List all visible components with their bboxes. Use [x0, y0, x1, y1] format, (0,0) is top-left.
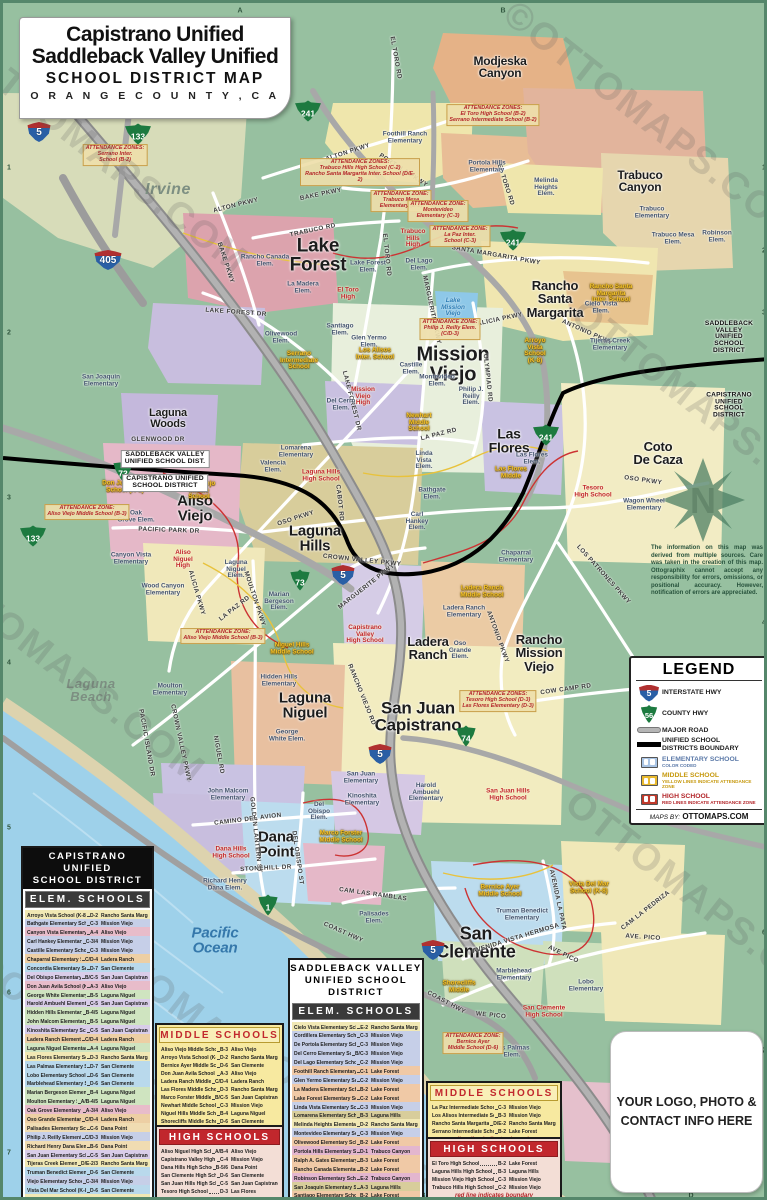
- school-row: Wagon Wheel Elementary SchoolE-3Coto de …: [25, 1194, 150, 1200]
- legend-item-county: 56 COUNTY HWY: [636, 705, 762, 723]
- school-name: Chaparral Elementary School: [27, 957, 81, 963]
- grid-ref: A-4: [90, 930, 98, 936]
- school-row: Hidden Hills Elementary SchoolB-4/5Lagun…: [25, 1007, 150, 1016]
- school-name: Tijeras Creek Elementary School: [27, 1161, 77, 1167]
- school-name: Palisades Elementary School: [27, 1126, 86, 1132]
- school-city: San Clemente: [101, 1188, 148, 1194]
- school-city: Mission Viejo: [371, 1060, 418, 1066]
- leader-dots: [87, 987, 89, 988]
- school-name: San Juan Hills High School: [161, 1181, 216, 1187]
- grid-ref: B-4: [220, 1111, 228, 1117]
- leader-dots: [82, 1040, 84, 1041]
- school-name: Robinson Elementary School: [294, 1176, 356, 1182]
- leader-dots: [217, 1177, 219, 1178]
- school-city: Ladera Ranch: [101, 1037, 148, 1043]
- capistrano-district-header: CAPISTRANO UNIFIED SCHOOL DISTRICT: [23, 848, 152, 889]
- school-city: Mission Viejo: [101, 1179, 148, 1185]
- school-city: Lake Forest: [371, 1158, 418, 1164]
- school-city: Trabuco Canyon: [371, 1176, 418, 1182]
- school-name: Castille Elementary School: [27, 948, 86, 954]
- school-city: Mission Viejo: [509, 1113, 556, 1119]
- school-name: George White Elementary School: [27, 993, 86, 999]
- school-city: Lake Forest: [371, 1140, 418, 1146]
- grid-ref: A/B-4: [215, 1149, 228, 1155]
- school-row: Shorecliffs Middle SchoolD-6San Clemente: [159, 1117, 280, 1125]
- school-city: Rancho Santa Margarita: [231, 1055, 278, 1061]
- grid-ref: B-2: [360, 1193, 368, 1199]
- school-name: Serrano Intermediate School: [432, 1129, 494, 1135]
- leader-dots: [217, 1107, 219, 1108]
- school-row: Aliso Niguel High SchoolA/B-4Aliso Viejo: [159, 1147, 280, 1155]
- school-city: San Juan Capistrano: [231, 1095, 278, 1101]
- school-row: George White Elementary SchoolB-5Laguna …: [25, 990, 150, 999]
- school-row: Ladera Ranch Middle SchoolC/D-4Ladera Ra…: [159, 1077, 280, 1085]
- leader-dots: [87, 934, 89, 935]
- school-city: Laguna Hills: [509, 1169, 556, 1175]
- school-name: Tesoro High School: [161, 1189, 208, 1195]
- school-city: Mission Viejo: [231, 1157, 278, 1163]
- leader-dots: [357, 1081, 359, 1082]
- school-row: Don Juan Avila School (K-8)A-3Aliso Viej…: [25, 981, 150, 990]
- school-name: Ladera Ranch Middle School: [161, 1079, 211, 1085]
- grid-ref: C-3: [360, 1131, 368, 1137]
- school-name: Moulton Elementary School: [27, 1099, 77, 1105]
- leader-dots: [357, 1046, 359, 1047]
- school-name: Oak Grove Elementary School: [27, 1108, 82, 1114]
- grid-ref: A-3/4: [86, 1108, 98, 1114]
- school-city: San Juan Capistrano: [101, 975, 148, 981]
- saddleback-elem-rows: Cielo Vista Elementary SchoolE-2Rancho S…: [290, 1022, 422, 1200]
- leader-dots: [352, 1055, 354, 1056]
- elementary-book-icon: [641, 757, 658, 768]
- grid-ref: B-2: [360, 1087, 368, 1093]
- school-row: La Madera Elementary SchoolB-2Lake Fores…: [292, 1084, 420, 1093]
- school-name: Oso Grande Elementary School: [27, 1117, 81, 1123]
- school-name: Marblehead Elementary School: [27, 1081, 86, 1087]
- leader-dots: [87, 1058, 89, 1059]
- legend-sublabel: RED LINES INDICATE ATTENDANCE ZONE: [662, 800, 756, 805]
- school-city: Rancho Santa Margarita: [101, 1161, 148, 1167]
- school-city: Rancho Santa Margarita: [101, 913, 148, 919]
- school-city: Mission Viejo: [371, 1105, 418, 1111]
- school-row: San Juan Elementary SchoolC-5San Juan Ca…: [25, 1150, 150, 1159]
- school-city: Laguna Niguel: [101, 1046, 148, 1052]
- leader-dots: [82, 960, 84, 961]
- saddleback-elem-header: ELEM. SCHOOLS: [292, 1003, 420, 1020]
- leader-dots: [217, 1115, 219, 1116]
- school-row: Cielo Vista Elementary SchoolE-2Rancho S…: [292, 1022, 420, 1031]
- leader-dots: [357, 1072, 359, 1073]
- school-row: Newhart Middle SchoolC-3Mission Viejo: [159, 1101, 280, 1109]
- leader-dots: [78, 1165, 80, 1166]
- leader-dots: [357, 1170, 359, 1171]
- leader-dots: [87, 1049, 89, 1050]
- leader-dots: [217, 1051, 219, 1052]
- school-name: Canyon Vista Elementary School: [27, 930, 86, 936]
- school-city: Lake Forest: [371, 1069, 418, 1075]
- leader-dots: [87, 1067, 89, 1068]
- grid-ref: C/D-4: [85, 1037, 98, 1043]
- leader-dots: [87, 996, 89, 997]
- legend-item-boundary: UNIFIED SCHOOL DISTRICTS BOUNDARY: [636, 737, 762, 752]
- school-city: Aliso Viejo: [101, 984, 148, 990]
- school-row: Bathgate Elementary SchoolC-3Mission Vie…: [25, 919, 150, 928]
- school-city: Mission Viejo: [371, 1078, 418, 1084]
- leader-dots: [87, 1005, 89, 1006]
- school-name: Portola Hills Elementary School: [294, 1149, 356, 1155]
- school-row: Vista Del Mar School (K-8)D-6San Clement…: [25, 1185, 150, 1194]
- leader-dots: [490, 1125, 492, 1126]
- leader-dots: [87, 1129, 89, 1130]
- school-name: Montevideo Elementary School: [294, 1131, 356, 1137]
- school-row: Philip J. Reilly Elementary SchoolC/D-3M…: [25, 1132, 150, 1141]
- grid-ref: C-3: [360, 1042, 368, 1048]
- grid-ref: D-2: [90, 913, 98, 919]
- school-city: Aliso Viejo: [101, 930, 148, 936]
- grid-ref: D-6: [90, 1081, 98, 1087]
- school-row: Capistrano Valley High SchoolC-4Mission …: [159, 1155, 280, 1163]
- grid-ref: C-5: [90, 1001, 98, 1007]
- major-road-icon: [637, 727, 661, 733]
- school-city: Mission Viejo: [509, 1177, 556, 1183]
- school-row: Los Alisos Intermediate SchoolB-3Mission…: [430, 1111, 558, 1119]
- leader-dots: [357, 1064, 359, 1065]
- grid-ref: D-3: [90, 1055, 98, 1061]
- legend-item-elementary: ELEMENTARY SCHOOLCOLOR CODED: [636, 756, 762, 769]
- school-row: Las Flores Elementary SchoolD-3Rancho Sa…: [25, 1052, 150, 1061]
- leader-dots: [87, 1174, 89, 1175]
- school-name: Hidden Hills Elementary School: [27, 1010, 82, 1016]
- school-name: Dana Hills High School: [161, 1165, 212, 1171]
- saddleback-high-note: red line indicates boundary: [428, 1193, 560, 1200]
- school-name: Kinoshita Elementary School: [27, 1028, 86, 1034]
- school-city: Mission Viejo: [231, 1103, 278, 1109]
- leader-dots: [213, 1169, 215, 1170]
- school-city: Aliso Viejo: [231, 1149, 278, 1155]
- school-city: Laguna Niguel: [101, 1090, 148, 1096]
- school-row: Las Palmas Elementary SchoolD-7San Cleme…: [25, 1061, 150, 1070]
- grid-ref: B/C-5: [85, 975, 98, 981]
- legend-item-middle: MIDDLE SCHOOLYELLOW LINES INDICATE ATTEN…: [636, 772, 762, 790]
- saddleback-middle-rows: La Paz Intermediate SchoolC-3Mission Vie…: [428, 1103, 560, 1137]
- school-name: Laguna Hills High School: [432, 1169, 492, 1175]
- grid-ref: D/E-2/3: [81, 1161, 98, 1167]
- school-city: Mission Viejo: [371, 1033, 418, 1039]
- school-city: Laguna Hills: [371, 1185, 418, 1191]
- leader-dots: [357, 1126, 359, 1127]
- capistrano-middle-header: MIDDLE SCHOOLS: [159, 1027, 280, 1043]
- capistrano-high-rows: Aliso Niguel High SchoolA/B-4Aliso Viejo…: [157, 1147, 282, 1197]
- grid-ref: B-4: [90, 1090, 98, 1096]
- school-city: Ladera Ranch: [101, 957, 148, 963]
- grid-ref: C-3: [90, 921, 98, 927]
- grid-ref: E-2: [360, 1176, 368, 1182]
- school-city: San Clemente: [231, 1173, 278, 1179]
- school-city: San Clemente: [101, 1073, 148, 1079]
- school-row: Tesoro High SchoolD-3Las Flores: [159, 1187, 280, 1195]
- school-city: Aliso Viejo: [231, 1047, 278, 1053]
- grid-ref: C-3/4: [86, 1179, 98, 1185]
- grid-ref: C-5: [220, 1181, 228, 1187]
- school-name: Capistrano Valley High School: [161, 1157, 216, 1163]
- school-name: Las Flores Elementary School: [27, 1055, 86, 1061]
- leader-dots: [212, 1153, 214, 1154]
- school-name: Don Juan Avila School (K-8): [161, 1071, 216, 1077]
- leader-dots: [83, 943, 85, 944]
- leader-dots: [83, 1014, 85, 1015]
- grid-ref: B-3: [498, 1169, 506, 1175]
- leader-dots: [82, 1138, 84, 1139]
- school-row: Lake Forest Elementary SchoolC-2Lake For…: [292, 1093, 420, 1102]
- leader-dots: [217, 1123, 219, 1124]
- school-city: Laguna Niguel: [101, 993, 148, 999]
- grid-ref: C-3/4: [86, 939, 98, 945]
- leader-dots: [212, 1083, 214, 1084]
- school-row: Dana Hills High SchoolB-5/6Dana Point: [159, 1163, 280, 1171]
- school-name: Aliso Viejo Middle School: [161, 1047, 216, 1053]
- legend-label: UNIFIED SCHOOL DISTRICTS BOUNDARY: [662, 737, 739, 752]
- school-name: La Madera Elementary School: [294, 1087, 356, 1093]
- leader-dots: [480, 1165, 497, 1166]
- school-row: Richard Henry Dana Elementary SchoolB-6D…: [25, 1141, 150, 1150]
- school-row: Trabuco Hills High SchoolC-2Mission Viej…: [430, 1183, 558, 1191]
- school-row: Niguel Hills Middle SchoolB-4Laguna Nigu…: [159, 1109, 280, 1117]
- school-name: Lobo Elementary School: [27, 1073, 86, 1079]
- school-name: Cielo Vista Elementary School: [294, 1025, 356, 1031]
- school-row: Montevideo Elementary SchoolC-3Mission V…: [292, 1128, 420, 1137]
- school-city: Las Flores: [231, 1189, 278, 1195]
- school-row: Concordia Elementary SchoolD-7San Clemen…: [25, 963, 150, 972]
- leader-dots: [495, 1181, 497, 1182]
- school-city: San Juan Capistrano: [231, 1181, 278, 1187]
- grid-ref: C-3: [360, 1033, 368, 1039]
- school-row: San Joaquin Elementary SchoolA-3Laguna H…: [292, 1182, 420, 1191]
- leader-dots: [87, 916, 89, 917]
- boundary-line-icon: [637, 742, 661, 747]
- grid-ref: B-3: [360, 1158, 368, 1164]
- school-name: Bathgate Elementary School: [27, 921, 86, 927]
- school-name: Lomarena Elementary School: [294, 1113, 356, 1119]
- school-row: Ladera Ranch Elementary SchoolC/D-4Lader…: [25, 1034, 150, 1043]
- saddleback-district-header: SADDLEBACK VALLEY UNIFIED SCHOOL DISTRIC…: [290, 960, 422, 1001]
- school-city: Lake Forest: [371, 1193, 418, 1199]
- leader-dots: [357, 1188, 359, 1189]
- leader-dots: [217, 1067, 219, 1068]
- leader-dots: [357, 1179, 359, 1180]
- leader-dots: [217, 1059, 219, 1060]
- capistrano-elem-rows: Arroyo Vista School (K-8)D-2Rancho Santa…: [23, 910, 152, 1200]
- leader-dots: [87, 1032, 89, 1033]
- school-name: Santiago Elementary School: [294, 1193, 356, 1199]
- leader-dots: [87, 969, 89, 970]
- maps-by-prefix: MAPS BY:: [650, 814, 680, 821]
- school-row: Del Cerro Elementary SchoolB/C-3Mission …: [292, 1048, 420, 1057]
- school-name: Marian Bergeson Elementary School: [27, 1090, 86, 1096]
- legend-item-interstate: 5 INTERSTATE HWY: [636, 685, 762, 702]
- leader-dots: [357, 1099, 359, 1100]
- school-city: Laguna Niguel: [101, 1099, 148, 1105]
- grid-ref: D/E-2: [493, 1121, 506, 1127]
- school-name: Mission Viejo High School: [432, 1177, 494, 1183]
- leader-dots: [357, 1108, 359, 1109]
- grid-ref: D-3: [220, 1189, 228, 1195]
- school-name: Las Palmas Elementary School: [27, 1064, 86, 1070]
- school-row: Kinoshita Elementary SchoolC-5San Juan C…: [25, 1025, 150, 1034]
- school-city: Mission Viejo: [509, 1105, 556, 1111]
- capistrano-district-list: CAPISTRANO UNIFIED SCHOOL DISTRICT ELEM.…: [21, 846, 154, 1200]
- leader-dots: [82, 978, 84, 979]
- leader-dots: [357, 1197, 359, 1198]
- maps-by-credit: MAPS BY: OTTOMAPS.COM: [636, 809, 762, 821]
- school-row: Mission Viejo High SchoolC-3Mission Viej…: [430, 1175, 558, 1183]
- legend-label: ELEMENTARY SCHOOL: [662, 756, 739, 763]
- school-name: Richard Henry Dana Elementary School: [27, 1144, 86, 1150]
- leader-dots: [357, 1144, 359, 1145]
- school-city: Lake Forest: [509, 1129, 556, 1135]
- grid-ref: D-6: [90, 1073, 98, 1079]
- leader-dots: [493, 1173, 497, 1174]
- grid-ref: B-3: [360, 1113, 368, 1119]
- school-row: Marblehead Elementary SchoolD-6San Cleme…: [25, 1079, 150, 1088]
- school-city: Rancho Santa Margarita: [509, 1121, 556, 1127]
- school-city: Mission Viejo: [101, 939, 148, 945]
- leader-dots: [78, 1103, 80, 1104]
- school-name: Aliso Niguel High School: [161, 1149, 211, 1155]
- grid-ref: C-1: [360, 1069, 368, 1075]
- leader-dots: [357, 1090, 359, 1091]
- grid-ref: C-4: [220, 1157, 228, 1163]
- grid-ref: B-4/5: [86, 1010, 98, 1016]
- school-name: Newhart Middle School: [161, 1103, 216, 1109]
- grid-ref: D-6: [90, 1170, 98, 1176]
- school-name: Laguna Niguel Elementary School: [27, 1046, 86, 1052]
- grid-ref: D-3: [220, 1087, 228, 1093]
- logo-placeholder: YOUR LOGO, PHOTO & CONTACT INFO HERE: [610, 1031, 763, 1193]
- school-city: Mission Viejo: [371, 1131, 418, 1137]
- school-row: Laguna Hills High SchoolB-3Laguna Hills: [430, 1167, 558, 1175]
- grid-ref: B-5: [90, 993, 98, 999]
- school-name: Cordillera Elementary School: [294, 1033, 356, 1039]
- grid-ref: C-2: [360, 1096, 368, 1102]
- school-row: Portola Hills Elementary SchoolD-1Trabuc…: [292, 1146, 420, 1155]
- school-row: Cordillera Elementary SchoolC-3Mission V…: [292, 1031, 420, 1040]
- leader-dots: [87, 1085, 89, 1086]
- legend-sublabel: COLOR CODED: [662, 763, 739, 768]
- leader-dots: [87, 1156, 89, 1157]
- school-row: Las Flores Middle SchoolD-3Rancho Santa …: [159, 1085, 280, 1093]
- school-name: Carl Hankey Elementary School: [27, 939, 82, 945]
- school-row: Chaparral Elementary SchoolC/D-4Ladera R…: [25, 954, 150, 963]
- school-name: San Clemente High School: [161, 1173, 216, 1179]
- school-row: Oak Grove Elementary SchoolA-3/4Aliso Vi…: [25, 1105, 150, 1114]
- leader-dots: [217, 1075, 219, 1076]
- school-name: Del Cerro Elementary School: [294, 1051, 351, 1057]
- school-name: El Toro High School: [432, 1161, 479, 1167]
- saddleback-middle-header: MIDDLE SCHOOLS: [430, 1085, 558, 1101]
- school-name: Olivewood Elementary School: [294, 1140, 356, 1146]
- title-line3: SCHOOL DISTRICT MAP: [20, 70, 290, 88]
- school-row: Melinda Heights Elementary SchoolD-2Ranc…: [292, 1119, 420, 1128]
- school-row: Glen Yermo Elementary SchoolC-2Mission V…: [292, 1075, 420, 1084]
- school-row: Marian Bergeson Elementary SchoolB-4Lagu…: [25, 1087, 150, 1096]
- school-row: Santiago Elementary SchoolB-2Lake Forest: [292, 1191, 420, 1200]
- school-name: Truman Benedict Elementary School: [27, 1170, 86, 1176]
- school-name: Don Juan Avila School (K-8): [27, 984, 86, 990]
- school-city: Ladera Ranch: [231, 1079, 278, 1085]
- grid-ref: C/D-4: [215, 1079, 228, 1085]
- saddleback-high-header: HIGH SCHOOLS: [430, 1141, 558, 1157]
- map-disclaimer: The information on this map was derived …: [651, 545, 763, 598]
- leader-dots: [87, 1147, 89, 1148]
- grid-ref: B-2: [498, 1161, 506, 1167]
- leader-dots: [495, 1189, 497, 1190]
- school-row: John Malcom Elementary SchoolB-5Laguna N…: [25, 1016, 150, 1025]
- school-row: El Toro High SchoolB-2Lake Forest: [430, 1159, 558, 1167]
- grid-ref: B-6: [90, 1144, 98, 1150]
- grid-ref: D-2: [360, 1122, 368, 1128]
- county-shield-icon: 56: [641, 705, 658, 723]
- leader-dots: [357, 1117, 359, 1118]
- school-row: Serrano Intermediate SchoolB-2Lake Fores…: [430, 1127, 558, 1135]
- leader-dots: [357, 1028, 359, 1029]
- school-city: Mission Viejo: [371, 1051, 418, 1057]
- leader-dots: [83, 1183, 85, 1184]
- map-poster: N IrvineModjeska CanyonTrabuco CanyonLak…: [0, 0, 767, 1200]
- legend: LEGEND 5 INTERSTATE HWY 56 COUNTY HWY MA…: [629, 656, 767, 825]
- school-name: Concordia Elementary School: [27, 966, 86, 972]
- leader-dots: [357, 1161, 359, 1162]
- school-name: Niguel Hills Middle School: [161, 1111, 216, 1117]
- grid-ref: D-1: [360, 1149, 368, 1155]
- school-row: Foothill Ranch Elementary SchoolC-1Lake …: [292, 1066, 420, 1075]
- school-name: San Juan Elementary School: [27, 1153, 86, 1159]
- grid-ref: C/D-4: [85, 1117, 98, 1123]
- legend-item-road: MAJOR ROAD: [636, 727, 762, 734]
- school-name: Trabuco Hills High School: [432, 1185, 494, 1191]
- middle-book-icon: [641, 775, 658, 786]
- school-city: Mission Viejo: [101, 1135, 148, 1141]
- leader-dots: [87, 1076, 89, 1077]
- title-line1: Capistrano Unified: [20, 24, 290, 46]
- school-city: San Clemente: [231, 1063, 278, 1069]
- school-name: Ladera Ranch Elementary School: [27, 1037, 81, 1043]
- school-city: Lake Forest: [509, 1161, 556, 1167]
- school-city: Ladera Ranch: [101, 1117, 148, 1123]
- school-row: Lomarena Elementary SchoolB-3Laguna Hill…: [292, 1111, 420, 1120]
- grid-ref: A-3: [220, 1071, 228, 1077]
- school-name: La Paz Intermediate School: [432, 1105, 494, 1111]
- leader-dots: [209, 1193, 219, 1194]
- school-row: Aliso Viejo Middle SchoolB-3Aliso Viejo: [159, 1045, 280, 1053]
- school-name: Del Lago Elementary School: [294, 1060, 356, 1066]
- school-row: Moulton Elementary SchoolA/B-4/5Laguna N…: [25, 1096, 150, 1105]
- grid-ref: B-2: [360, 1167, 368, 1173]
- school-city: San Clemente: [101, 1081, 148, 1087]
- grid-ref: C/D-3: [85, 1135, 98, 1141]
- school-row: Linda Vista Elementary SchoolC-3Mission …: [292, 1102, 420, 1111]
- grid-ref: B/C-3: [355, 1051, 368, 1057]
- school-city: San Juan Capistrano: [101, 1153, 148, 1159]
- saddleback-district-list: SADDLEBACK VALLEY UNIFIED SCHOOL DISTRIC…: [288, 958, 424, 1200]
- school-row: Harold Ambuehl Elementary SchoolC-5San J…: [25, 999, 150, 1008]
- school-city: San Juan Capistrano: [101, 1001, 148, 1007]
- saddleback-high-box: HIGH SCHOOLS El Toro High SchoolB-2Lake …: [426, 1137, 562, 1200]
- school-city: Mission Viejo: [371, 1042, 418, 1048]
- grid-ref: B-3: [220, 1047, 228, 1053]
- grid-ref: B/C-5: [215, 1095, 228, 1101]
- school-city: Laguna Niguel: [101, 1010, 148, 1016]
- grid-ref: C-5: [90, 1153, 98, 1159]
